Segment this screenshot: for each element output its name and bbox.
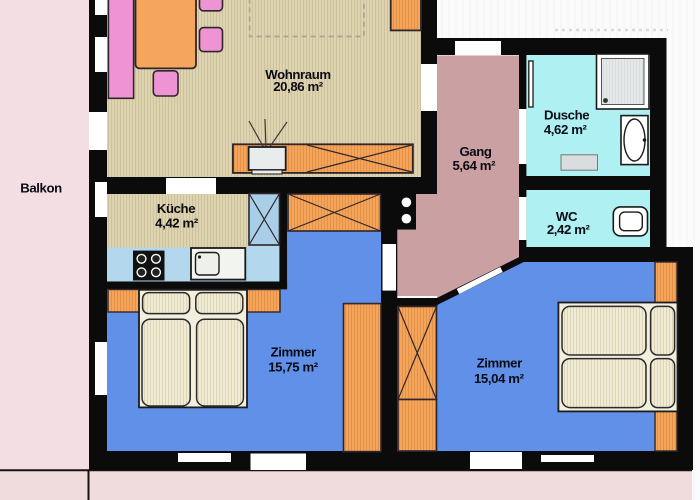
svg-text:Balkon: Balkon xyxy=(20,181,62,196)
svg-text:Zimmer: Zimmer xyxy=(477,356,523,371)
svg-text:15,04 m²: 15,04 m² xyxy=(474,371,525,386)
svg-text:Dusche: Dusche xyxy=(544,108,589,123)
svg-text:5,64 m²: 5,64 m² xyxy=(452,158,496,173)
svg-text:Zimmer: Zimmer xyxy=(271,344,317,359)
svg-text:Küche: Küche xyxy=(157,201,195,216)
svg-text:4,42 m²: 4,42 m² xyxy=(155,216,199,231)
svg-text:15,75 m²: 15,75 m² xyxy=(268,360,319,375)
svg-text:4,62 m²: 4,62 m² xyxy=(544,122,588,137)
svg-text:2,42 m²: 2,42 m² xyxy=(547,222,591,237)
svg-text:Gang: Gang xyxy=(459,144,491,159)
svg-text:20,86 m²: 20,86 m² xyxy=(273,79,324,94)
